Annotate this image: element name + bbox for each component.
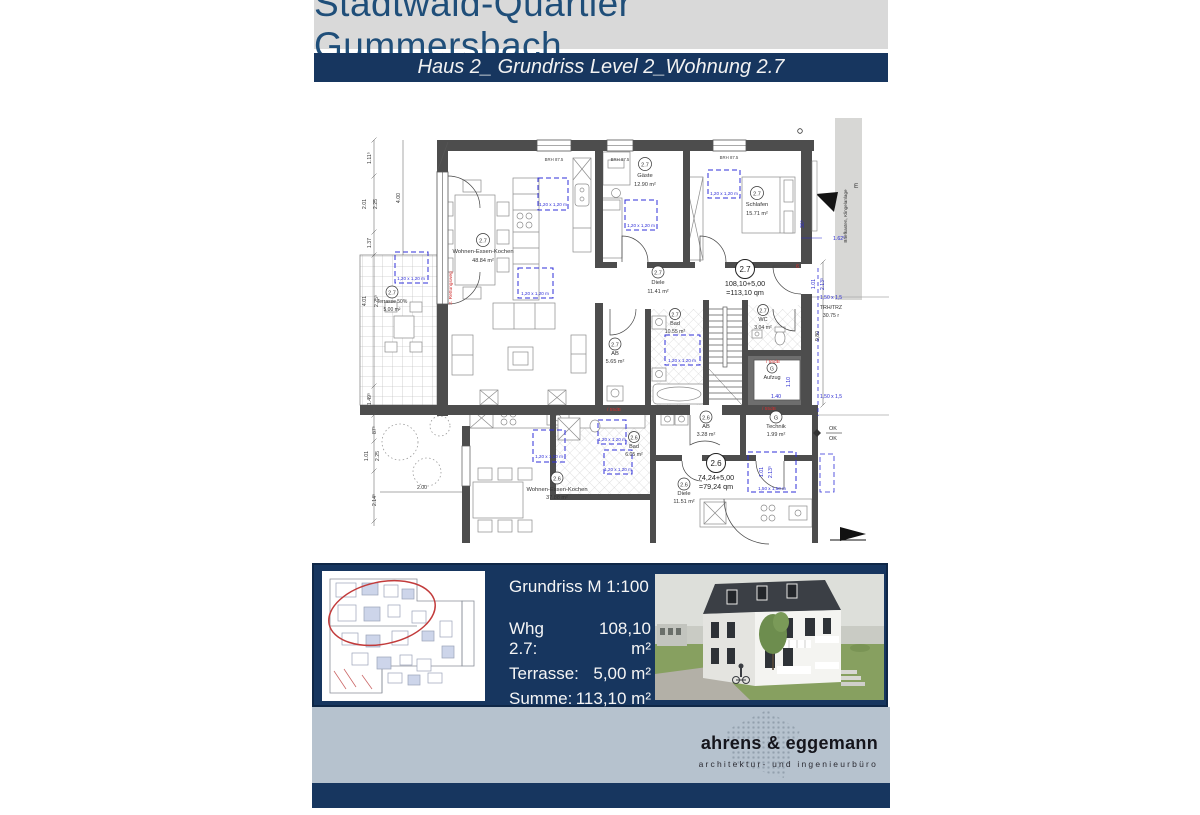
dim-label: 36⁵	[800, 220, 806, 228]
dim-label: 87⁵	[372, 426, 378, 434]
room-name: Schlafen	[746, 202, 769, 208]
overview-thumbnail	[322, 571, 485, 701]
room-unit: 2.7	[479, 239, 487, 245]
dim-label: 1.01	[759, 467, 765, 477]
room-unit: 2.7	[753, 192, 761, 198]
firm-logo: ahrens & eggemann	[701, 733, 878, 754]
scale-label: Grundriss M 1:100	[509, 577, 651, 597]
room-unit: 2.7	[611, 343, 619, 349]
total-unit: 2.7	[739, 265, 751, 274]
sound-note: / 55dB	[762, 406, 776, 412]
dim-label: 2.14⁵	[372, 494, 378, 506]
dim-label: 2.25	[373, 199, 379, 209]
rescue-route-note: 2. Rettungsweg	[448, 271, 454, 305]
area-label: Summe:	[509, 689, 572, 709]
mailbox-note: Briefkasten, Klingelanlage	[843, 189, 848, 243]
room-unit: 2.7	[671, 313, 678, 319]
room-area: 11.41 m²	[647, 289, 668, 295]
lift-width: 1.40	[771, 394, 781, 400]
room-area: 48.84 m²	[472, 258, 494, 264]
window-label: BRH 87.5	[611, 157, 630, 162]
grid-label: 1,20 x 1,20 m	[710, 191, 738, 196]
grid-label: 1,20 x 1,20 m	[397, 276, 425, 281]
dim-label: 1.01	[811, 279, 817, 289]
dim-label: 2.25⁵	[374, 295, 380, 307]
sound-note: / 55dB	[607, 407, 621, 413]
trh-label: TRH/TRZ	[820, 305, 842, 311]
grid-label: 1,20 x 1,20 m	[539, 202, 567, 207]
trh-value: 30.75 r	[823, 313, 839, 319]
logo-band: ahrens & eggemann architektur- und ingen…	[312, 707, 890, 783]
dim-label: 1.01	[364, 451, 370, 461]
room-area: 37.88 m²	[546, 495, 568, 501]
room-name: Diele	[651, 280, 664, 286]
area-value: 113,10 m²	[576, 689, 651, 709]
header-subtitle-bar: Haus 2_ Grundriss Level 2_Wohnung 2.7	[314, 53, 888, 82]
total-sum: 74,24+5,00	[698, 473, 734, 482]
room-area: 6.05 m²	[625, 452, 643, 458]
overview-plan-svg	[322, 571, 485, 701]
dim-label: 4.00	[396, 193, 402, 203]
grid-label: 1,20 x 1,20 m	[521, 291, 549, 296]
tree-sketches	[382, 416, 450, 486]
e-label: E	[854, 183, 859, 190]
page-subtitle: Haus 2_ Grundriss Level 2_Wohnung 2.7	[418, 56, 785, 79]
room-name: Wohnen-Essen-Kochen	[526, 487, 587, 493]
dim-label: 2.01	[362, 199, 368, 209]
dim-label: 9,80	[815, 331, 821, 341]
room-area: 10.55 m²	[665, 329, 686, 335]
dim-label: 1.37	[367, 238, 373, 248]
grid-label: 1,20 x 1,20 m	[627, 223, 655, 228]
floor-plan: 1,20 x 1,20 m 1,20 x 1,20 m 1,20 x 1,20 …	[352, 116, 892, 546]
room-unit: 2.7	[654, 271, 662, 277]
total-result: =79,24 qm	[699, 482, 733, 491]
dim-label: 2.13⁵	[768, 466, 774, 478]
area-value: 108,10 m²	[576, 619, 651, 659]
room-name: Technik	[766, 424, 786, 430]
room-area: 3.28 m²	[697, 432, 716, 438]
area-label: Terrasse:	[509, 664, 579, 684]
dim-label: 4.01	[362, 296, 368, 306]
floor-plan-svg: 1,20 x 1,20 m 1,20 x 1,20 m 1,20 x 1,20 …	[352, 116, 892, 546]
room-name: Terrasse 50%	[377, 299, 408, 305]
grid-label: 1,20 x 1,20 m	[535, 454, 563, 459]
dim-label: 1.49⁵	[367, 393, 373, 405]
footer-panel: Grundriss M 1:100 Whg 2.7: 108,10 m² Ter…	[312, 563, 888, 707]
room-area: 3.04 m²	[754, 325, 772, 331]
header-title-strip: Stadtwald-Quartier Gummersbach	[314, 0, 888, 49]
room-name: Gäste	[637, 173, 652, 179]
room-unit: G	[770, 367, 774, 373]
north-arrow-icon	[830, 527, 866, 541]
plan-info: Grundriss M 1:100 Whg 2.7: 108,10 m² Ter…	[509, 577, 651, 714]
room-area: 5,00 m²	[384, 307, 401, 313]
bottom-navy-band	[312, 783, 890, 808]
area-row: Whg 2.7: 108,10 m²	[509, 619, 651, 659]
room-name: WC	[758, 317, 767, 323]
ok-top: OK	[829, 426, 837, 432]
room-name: Bad	[629, 444, 639, 450]
area-row: Terrasse: 5,00 m²	[509, 664, 651, 684]
room-unit: G	[774, 416, 778, 422]
window-label: BRH 87.5	[720, 155, 739, 160]
total-sum: 108,10+5,00	[725, 279, 765, 288]
grid-label-150s: 1,50 x 1,5	[820, 295, 842, 301]
total-unit: 2.6	[710, 459, 722, 468]
ok-bottom: OK	[829, 436, 837, 442]
sound-note: / 55dB	[766, 359, 780, 365]
room-unit: 2.6	[553, 477, 561, 483]
firm-tagline: architektur- und ingenieurbüro	[699, 759, 878, 769]
room-area: 12.90 m²	[634, 182, 656, 188]
room-name: Bad	[670, 321, 680, 327]
room-unit: 2.6	[680, 483, 688, 489]
area-row: Summe: 113,10 m²	[509, 689, 651, 709]
room-unit: 2.6	[702, 416, 710, 422]
room-name: Aufzug	[763, 375, 780, 381]
room-area: 11.51 m²	[673, 499, 694, 505]
dim-label: 1.11⁵	[367, 152, 373, 164]
dim-label: 2.13⁵	[820, 278, 826, 290]
room-name: AB	[702, 424, 710, 430]
dim-label: 2.25	[375, 451, 381, 461]
room-area: 15.71 m²	[746, 211, 768, 217]
window-label: BRH 87.5	[545, 157, 564, 162]
room-unit: 2.7	[641, 163, 649, 169]
room-unit: 2.7	[388, 291, 396, 297]
room-area: 5.65 m²	[606, 359, 625, 365]
room-area: 1.99 m²	[767, 432, 786, 438]
dim-label: 2.00	[417, 485, 427, 491]
building-render	[655, 574, 884, 700]
grid-label-150s: 1,50 x 1,5	[820, 394, 842, 400]
room-name: Diele	[677, 491, 690, 497]
red-six: 6	[796, 264, 799, 270]
room-name: AB	[611, 351, 619, 357]
lift-depth: 1.10	[786, 377, 792, 387]
area-label: Whg 2.7:	[509, 619, 576, 659]
grid-label-150: 1,50 x 1,50 m	[758, 486, 786, 491]
room-name: Wohnen-Essen-Kochen	[452, 249, 513, 255]
grid-label: 1,20 x 1,20 m	[668, 358, 696, 363]
grid-label: 1,20 x 1,20 m	[598, 437, 626, 442]
area-value: 5,00 m²	[593, 664, 651, 684]
room-unit: 2.6	[630, 436, 637, 442]
room-unit: 2.7	[759, 309, 766, 315]
total-result: =113,10 qm	[726, 288, 764, 297]
building-render-svg	[655, 574, 884, 700]
stairwell	[709, 307, 742, 405]
grid-label: 1,20 x 1,20 m	[604, 467, 632, 472]
